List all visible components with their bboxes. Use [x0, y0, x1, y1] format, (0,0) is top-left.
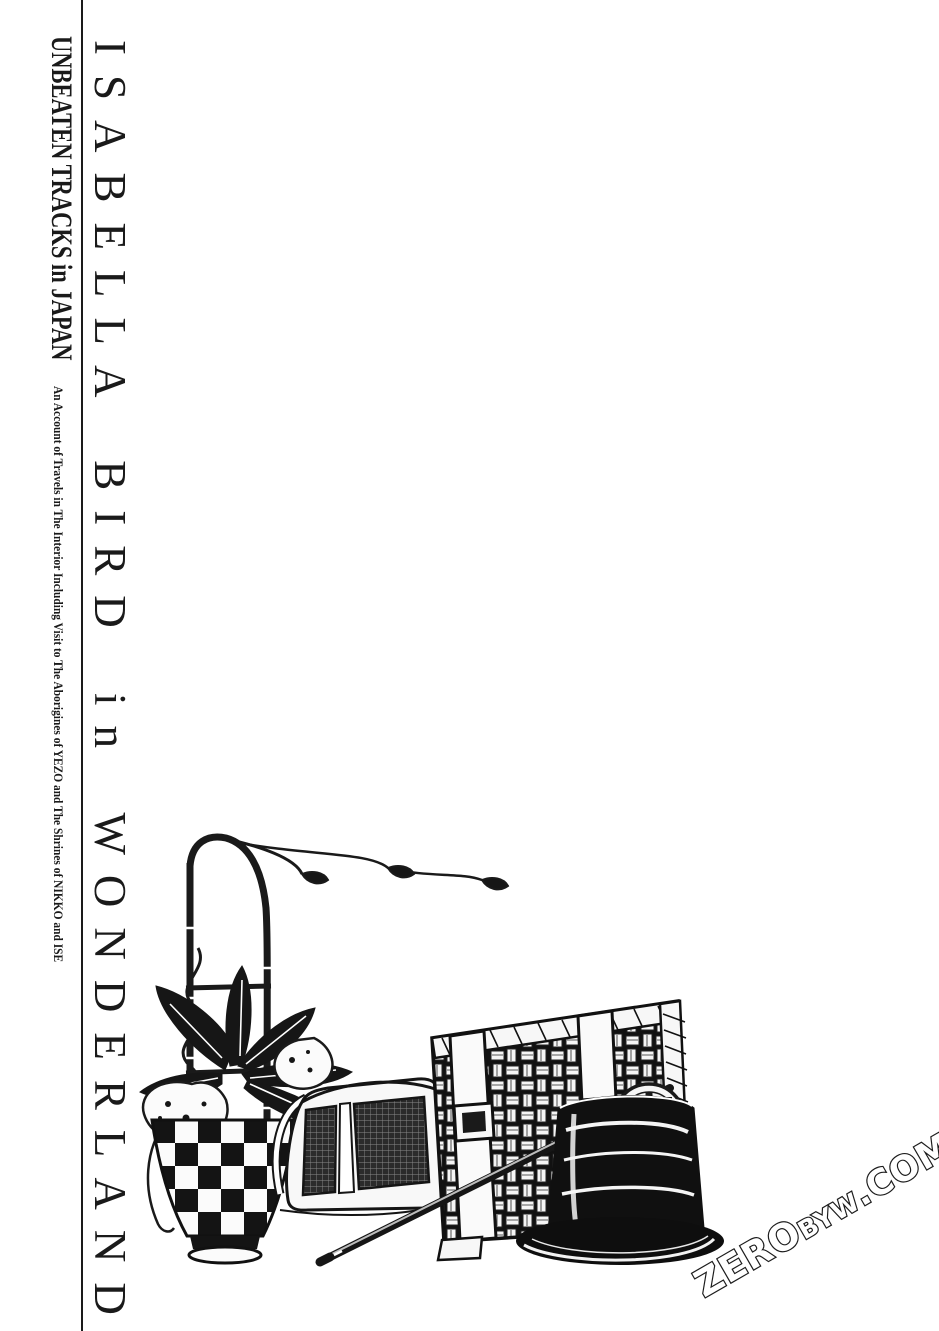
- still-life-illustration: [130, 808, 730, 1273]
- page: UNBEATEN TRACKS in JAPAN An Account of T…: [0, 0, 939, 1331]
- watermark: ZEROBYW.COM: [690, 1108, 939, 1331]
- watermark-text-group: ZEROBYW.COM: [687, 1124, 939, 1306]
- watermark-zero: ZERO: [687, 1211, 809, 1306]
- spine-subtitle: An Account of Travels in The Interior In…: [52, 386, 65, 962]
- spine-series-title: UNBEATEN TRACKS in JAPAN: [46, 36, 76, 360]
- watermark-com: .COM: [846, 1126, 939, 1214]
- watermark-text: ZEROBYW.COM: [687, 1124, 939, 1306]
- mesh-lantern-icon: [276, 1079, 450, 1215]
- spine-divider-rule: [81, 0, 83, 1331]
- page-title: ISABELLA BIRD in WONDERLAND: [87, 40, 132, 1331]
- watermark-byw: BYW: [793, 1187, 865, 1245]
